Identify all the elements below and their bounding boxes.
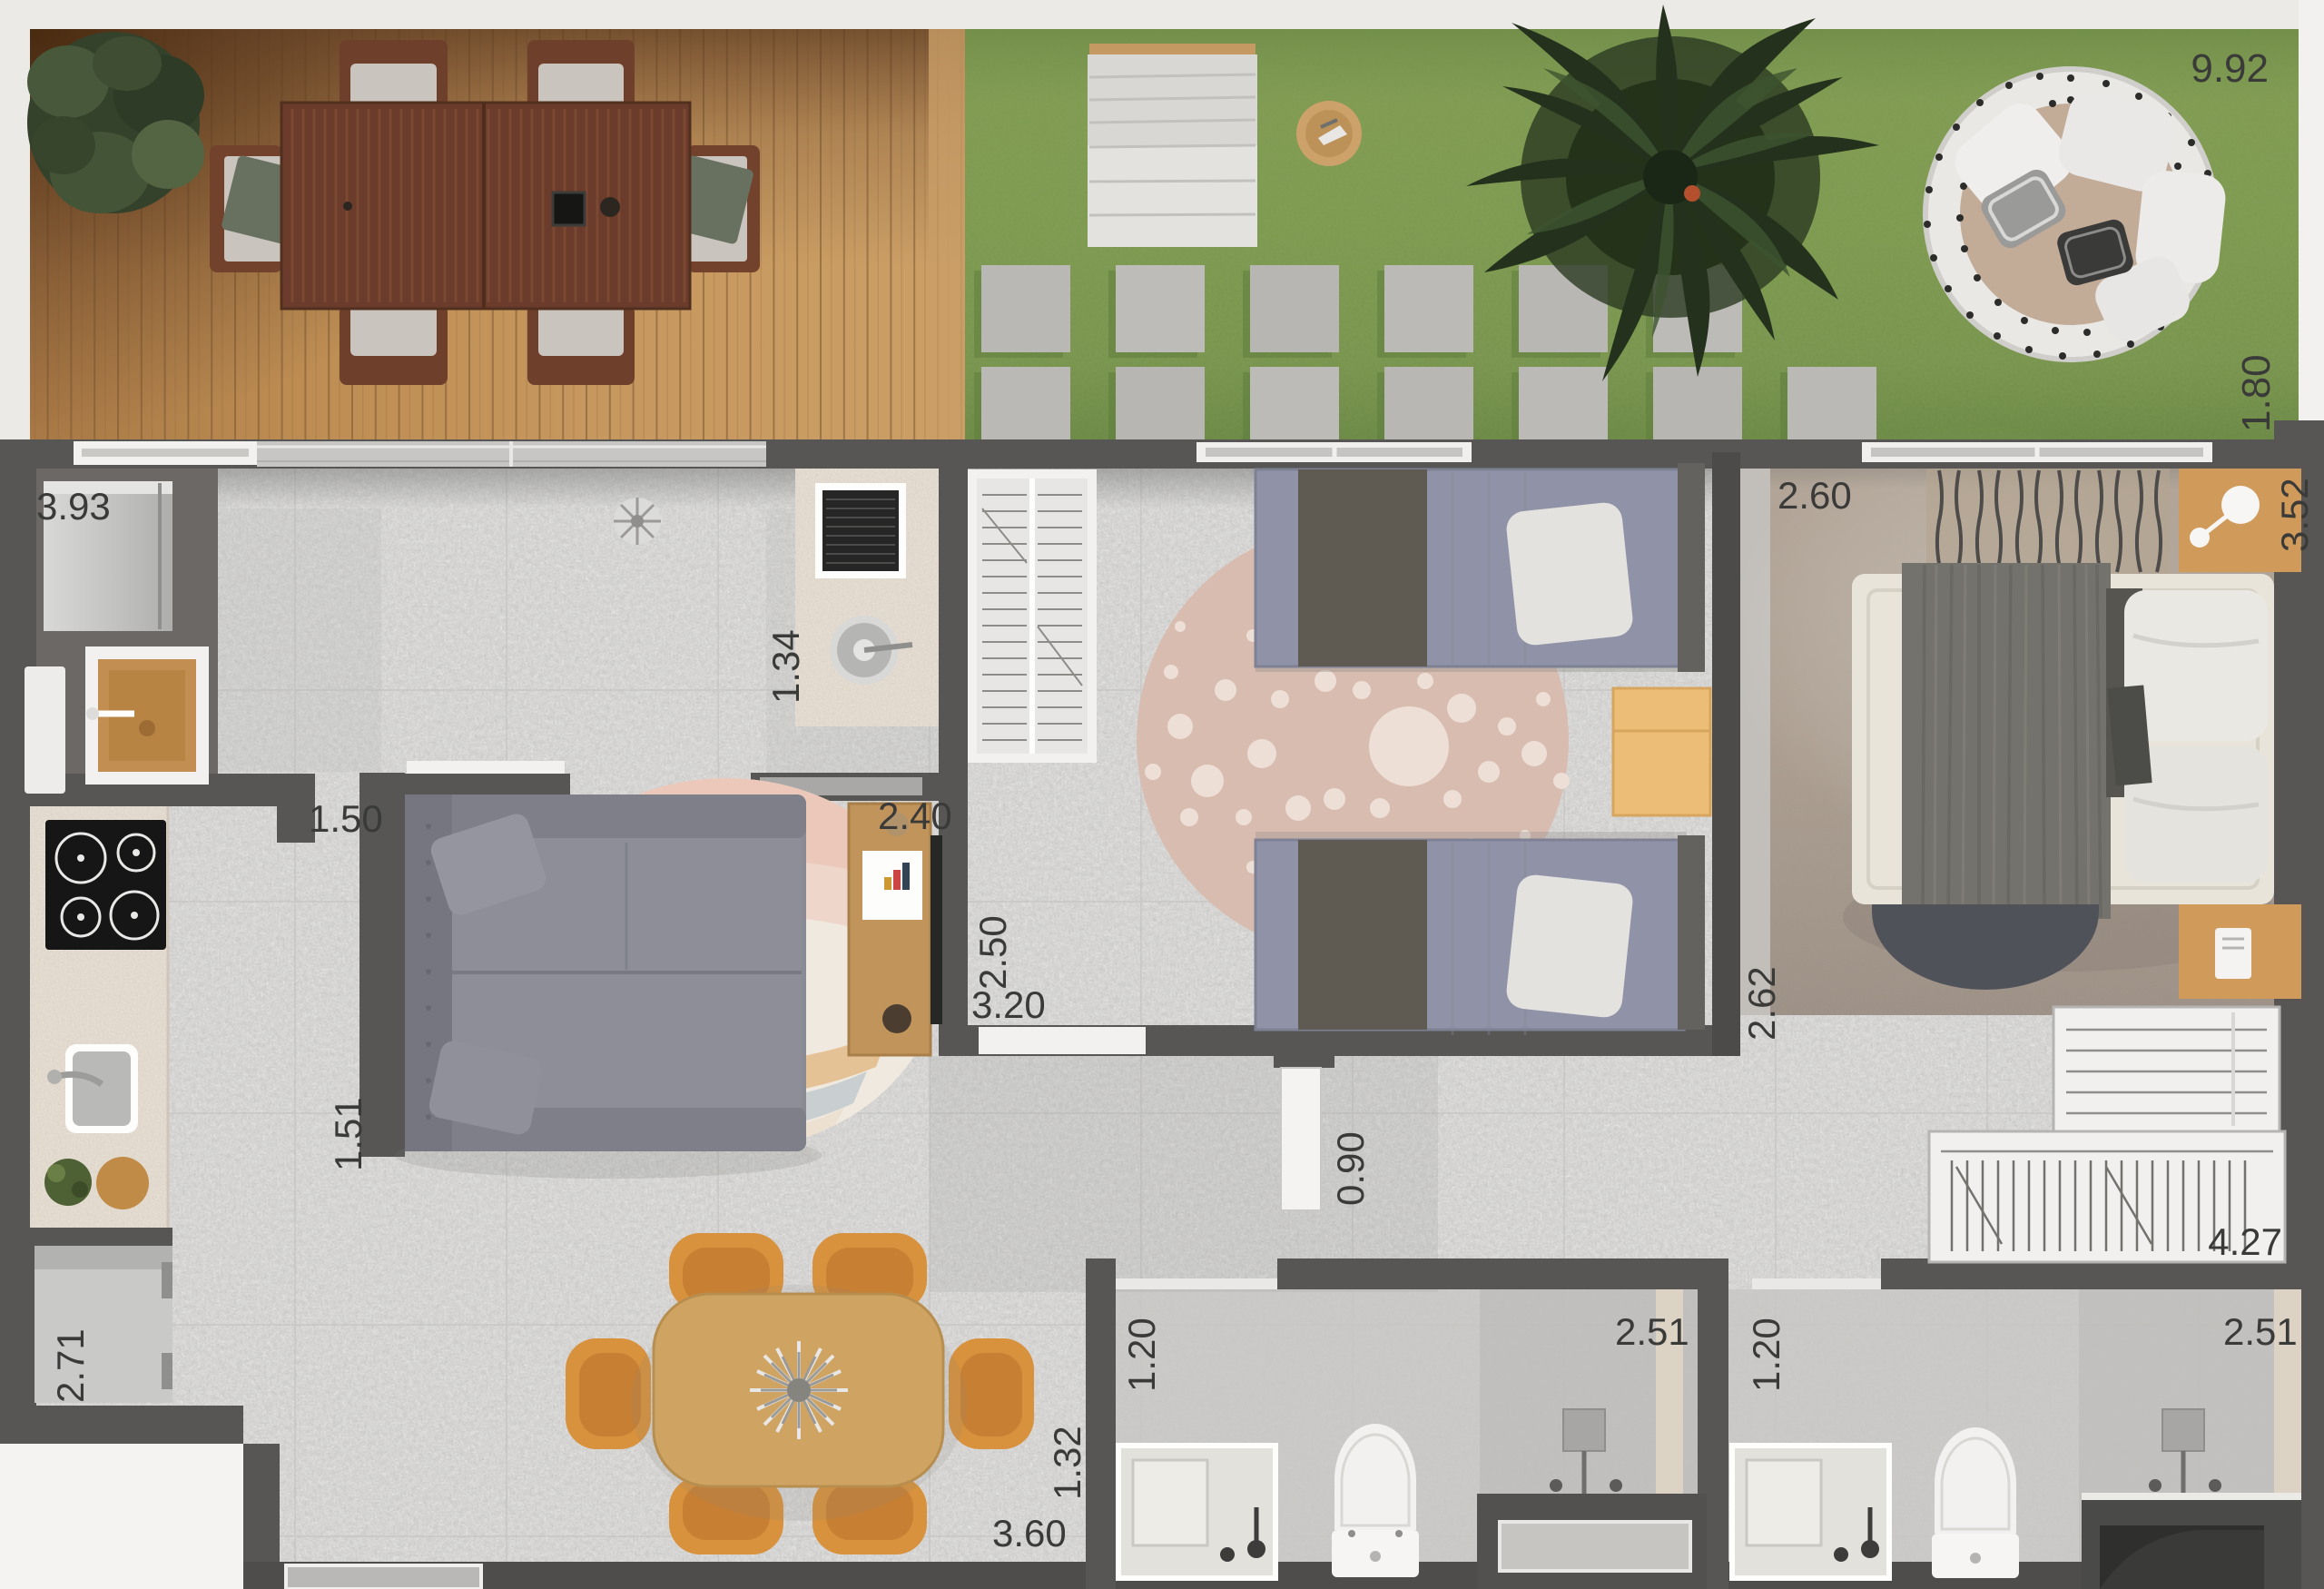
svg-text:1.20: 1.20 [1745, 1318, 1787, 1392]
svg-text:2.60: 2.60 [1777, 474, 1852, 517]
svg-text:2.71: 2.71 [49, 1328, 92, 1403]
svg-text:1.80: 1.80 [2234, 354, 2279, 432]
svg-text:3.93: 3.93 [36, 485, 111, 528]
svg-text:3.52: 3.52 [2273, 478, 2316, 552]
svg-text:1.34: 1.34 [764, 629, 807, 704]
svg-text:0.90: 0.90 [1329, 1131, 1372, 1206]
svg-text:3.20: 3.20 [971, 983, 1046, 1026]
svg-text:9.92: 9.92 [2191, 46, 2269, 91]
svg-text:1.50: 1.50 [309, 797, 383, 840]
svg-text:2.51: 2.51 [2223, 1310, 2298, 1353]
svg-text:2.51: 2.51 [1615, 1310, 1689, 1353]
svg-text:2.40: 2.40 [878, 794, 952, 837]
svg-text:2.62: 2.62 [1740, 966, 1783, 1041]
svg-text:1.20: 1.20 [1120, 1318, 1163, 1392]
svg-text:3.60: 3.60 [992, 1512, 1067, 1554]
svg-text:1.51: 1.51 [327, 1097, 369, 1171]
svg-text:2.50: 2.50 [971, 915, 1014, 990]
svg-text:4.27: 4.27 [2208, 1220, 2282, 1263]
svg-text:1.32: 1.32 [1046, 1426, 1088, 1500]
